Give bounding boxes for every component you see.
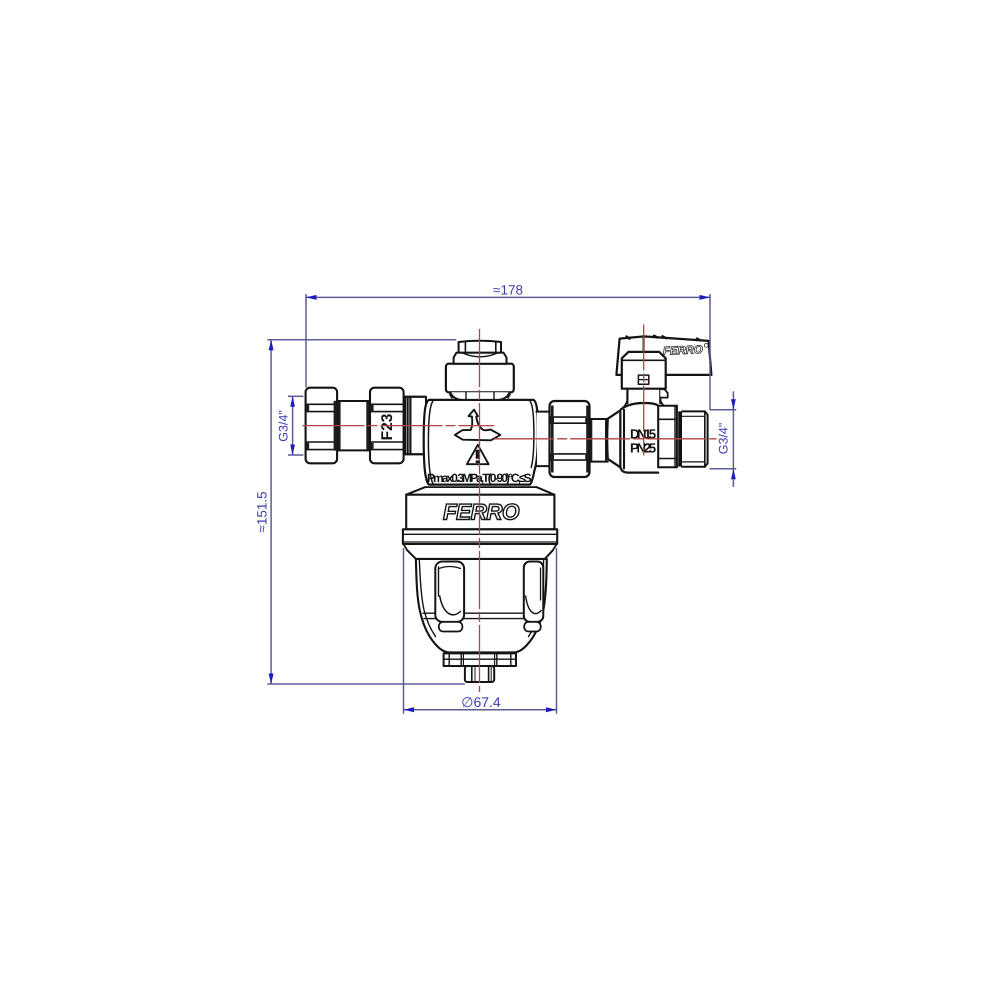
svg-text:PN25: PN25 (630, 440, 656, 455)
svg-text:≈151.5: ≈151.5 (255, 491, 270, 532)
svg-text:≈178: ≈178 (493, 283, 523, 298)
svg-text:∅67.4: ∅67.4 (461, 694, 501, 710)
svg-text:G3/4": G3/4" (277, 410, 291, 442)
svg-text:F23: F23 (379, 413, 396, 440)
svg-text:FERRO: FERRO (663, 344, 704, 358)
svg-text:FERRO: FERRO (443, 500, 521, 525)
svg-text:G3/4": G3/4" (717, 423, 731, 455)
